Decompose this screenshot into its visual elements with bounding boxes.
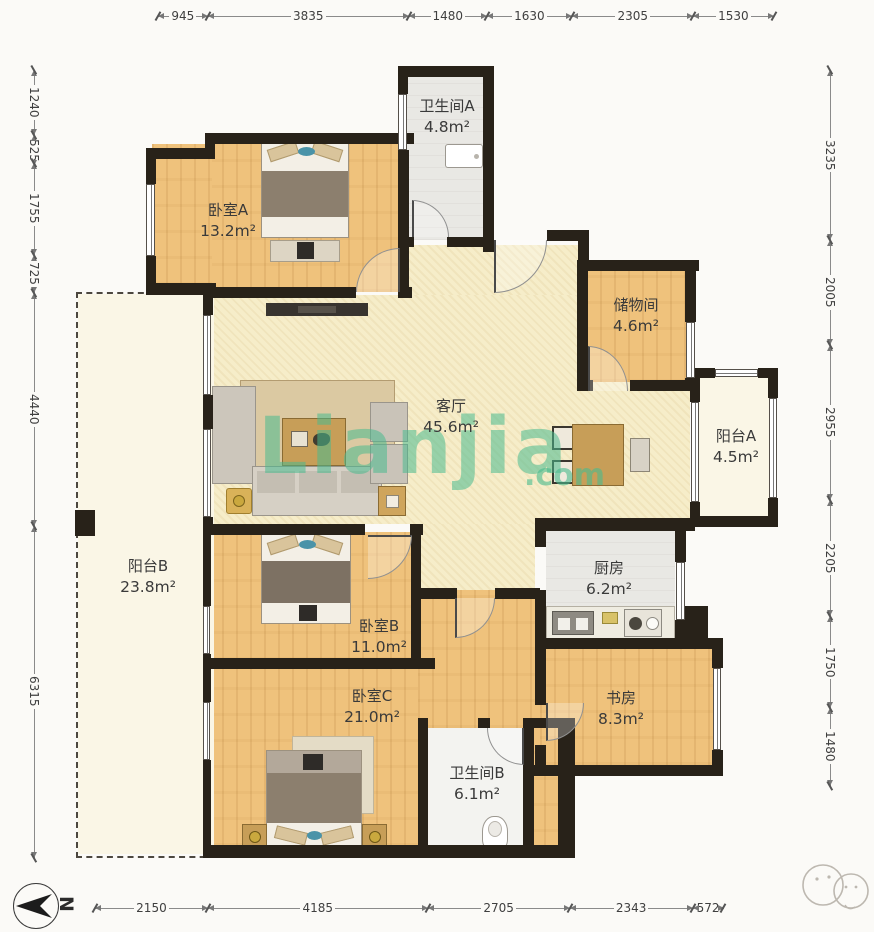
dimension-value: 2705: [481, 901, 516, 915]
wall: [630, 380, 695, 391]
dimension-segment-right: 2005: [822, 240, 838, 345]
wall: [712, 638, 723, 668]
dimension-segment-left: 6315: [26, 526, 42, 858]
side-table: [378, 486, 406, 516]
tv-on-bench: [303, 754, 323, 770]
wall: [411, 535, 421, 591]
wall: [398, 237, 414, 247]
sink-basin: [558, 618, 570, 630]
table-decor: [313, 433, 330, 446]
dimension-segment-right: 2205: [822, 500, 838, 616]
window: [203, 429, 211, 517]
dimension-segment-left: 525: [26, 135, 42, 163]
dimension-value: 725: [27, 260, 41, 287]
room-label-bathroom-b: 卫生间B6.1m²: [449, 763, 504, 805]
dimension-value: 3235: [823, 138, 837, 173]
decor: [386, 495, 399, 508]
window: [203, 702, 210, 760]
dimension-segment-top: 945: [158, 8, 208, 24]
dimension-segment-left: 725: [26, 255, 42, 293]
stove: [624, 609, 662, 637]
room-label-study: 书房8.3m²: [598, 688, 644, 730]
sofa: [252, 466, 382, 516]
window: [713, 668, 721, 750]
dimension-segment-top: 1630: [487, 8, 573, 24]
dimension-segment-bottom: 2705: [428, 900, 570, 916]
wall: [577, 260, 699, 271]
compass-icon: [13, 883, 59, 929]
dining-bench: [630, 438, 650, 472]
dimension-value: 1240: [27, 85, 41, 120]
dimension-segment-top: 1530: [693, 8, 773, 24]
wall: [398, 66, 408, 94]
wall: [410, 524, 423, 535]
dimension-segment-top: 1480: [409, 8, 487, 24]
brand-doodle-icon: [795, 855, 874, 915]
dimension-value: 3835: [291, 9, 326, 23]
dimension-value: 2005: [823, 275, 837, 310]
blanket: [267, 773, 361, 823]
wall: [203, 845, 575, 858]
wall: [535, 648, 546, 705]
room-label-kitchen: 厨房6.2m²: [586, 558, 632, 600]
floor-plan-page: { "rooms": [ {"id":"bedroom-a","name":"卧…: [0, 0, 874, 929]
wall: [478, 718, 490, 728]
room-label-bedroom-b: 卧室B11.0m²: [351, 616, 407, 658]
wall: [675, 520, 686, 562]
tv-on-bed-bench: [299, 605, 317, 621]
dimension-segment-bottom: 2343: [570, 900, 693, 916]
wall: [685, 260, 696, 322]
dimension-segment-left: 1240: [26, 70, 42, 135]
side-table: [226, 488, 252, 514]
wall: [535, 638, 723, 649]
dimension-value: 2205: [823, 541, 837, 576]
wall: [203, 658, 435, 669]
dimension-segment-top: 3835: [208, 8, 409, 24]
faucet-dot: [474, 154, 479, 159]
pillow: [267, 534, 300, 556]
wall: [768, 368, 778, 398]
window: [203, 315, 211, 395]
table-tray: [291, 431, 308, 447]
dining-table: [572, 424, 624, 486]
tv-screen: [298, 306, 336, 313]
burner: [629, 617, 642, 630]
wall: [695, 516, 778, 527]
dimension-value: 4185: [300, 901, 335, 915]
wall: [400, 287, 412, 298]
window: [715, 369, 758, 377]
burner: [646, 617, 659, 630]
window: [769, 398, 777, 498]
sofa-cushion: [257, 471, 295, 493]
sofa-cushion: [299, 471, 337, 493]
wall: [447, 237, 494, 247]
bed-cushion: [307, 831, 322, 840]
bed: [261, 140, 349, 238]
kitchen-sink: [552, 611, 594, 635]
window: [398, 94, 407, 150]
bed-cushion: [299, 540, 316, 549]
tv-on-bench: [297, 242, 314, 259]
lamp: [249, 831, 261, 843]
pillow: [320, 825, 354, 845]
armchair: [370, 444, 408, 484]
window: [691, 402, 699, 502]
room-label-living: 客厅45.6m²: [423, 396, 479, 438]
lamp: [233, 495, 245, 507]
dimension-value: 2150: [134, 901, 169, 915]
wall: [203, 395, 213, 429]
armchair: [370, 402, 408, 442]
dimension-segment-bottom: 4185: [208, 900, 428, 916]
pillow: [274, 825, 308, 845]
dimension-segment-bottom: 572: [693, 900, 723, 916]
dimension-segment-right: 2955: [822, 345, 838, 500]
dimension-value: 1480: [431, 9, 466, 23]
dimension-segment-right: 1480: [822, 708, 838, 786]
wall: [495, 588, 540, 599]
dimension-value: 1480: [823, 729, 837, 764]
wall: [483, 66, 494, 252]
floor-plan: 卧室A13.2m² 卫生间A4.8m² 储物间4.6m² 客厅45.6m² 阳台…: [0, 0, 874, 929]
room-label-balcony-b: 阳台B23.8m²: [120, 556, 176, 598]
wall: [418, 718, 428, 852]
bed: [266, 750, 362, 850]
wall: [411, 588, 421, 669]
room-label-balcony-a: 阳台A4.5m²: [713, 426, 759, 468]
window: [686, 322, 695, 378]
wall: [695, 368, 715, 378]
dimension-value: 2955: [823, 405, 837, 440]
wall: [577, 260, 588, 390]
room-label-storage: 储物间4.6m²: [613, 295, 659, 337]
wall: [203, 760, 211, 857]
dimension-segment-right: 3235: [822, 70, 838, 240]
wall: [398, 66, 494, 77]
room-label-bathroom-a: 卫生间A4.8m²: [419, 96, 474, 138]
dimension-value: 2343: [614, 901, 649, 915]
dimension-value: 1750: [823, 645, 837, 680]
balcony-pillar: [75, 510, 95, 536]
wall: [558, 718, 575, 858]
wall: [203, 524, 211, 606]
room-label-bedroom-c: 卧室C21.0m²: [344, 686, 400, 728]
dimension-value: 4440: [27, 392, 41, 427]
window: [203, 606, 210, 654]
dimension-value: 6315: [27, 674, 41, 709]
chaise-sofa: [212, 386, 256, 484]
dimension-segment-right: 1750: [822, 616, 838, 708]
bed-cushion: [298, 147, 315, 156]
sink-basin: [576, 618, 588, 630]
dimension-value: 1755: [27, 191, 41, 226]
coffee-table: [282, 418, 346, 466]
wall: [207, 287, 356, 298]
dimension-segment-top: 2305: [572, 8, 693, 24]
wall: [203, 524, 365, 535]
dimension-value: 2305: [615, 9, 650, 23]
cutting-board: [602, 612, 618, 624]
room-label-bedroom-a: 卧室A13.2m²: [200, 200, 256, 242]
toilet-seat: [488, 821, 502, 837]
wall: [523, 718, 534, 852]
dimension-value: 1630: [512, 9, 547, 23]
dimension-segment-left: 4440: [26, 293, 42, 526]
wall: [535, 520, 546, 547]
dimension-value: 1530: [716, 9, 751, 23]
wall: [146, 148, 156, 184]
dimension-value: 945: [169, 9, 196, 23]
wall: [146, 148, 215, 159]
blanket: [262, 561, 350, 603]
window: [676, 562, 685, 620]
compass-north-label: N: [55, 896, 77, 912]
lamp: [369, 831, 381, 843]
dimension-segment-bottom: 2150: [95, 900, 208, 916]
wall: [205, 133, 414, 144]
dimension-segment-left: 1755: [26, 163, 42, 255]
bed: [261, 534, 351, 624]
wall: [203, 654, 211, 702]
window: [146, 184, 155, 256]
vanity: [445, 144, 483, 168]
blanket: [262, 171, 348, 217]
wall: [535, 518, 695, 531]
